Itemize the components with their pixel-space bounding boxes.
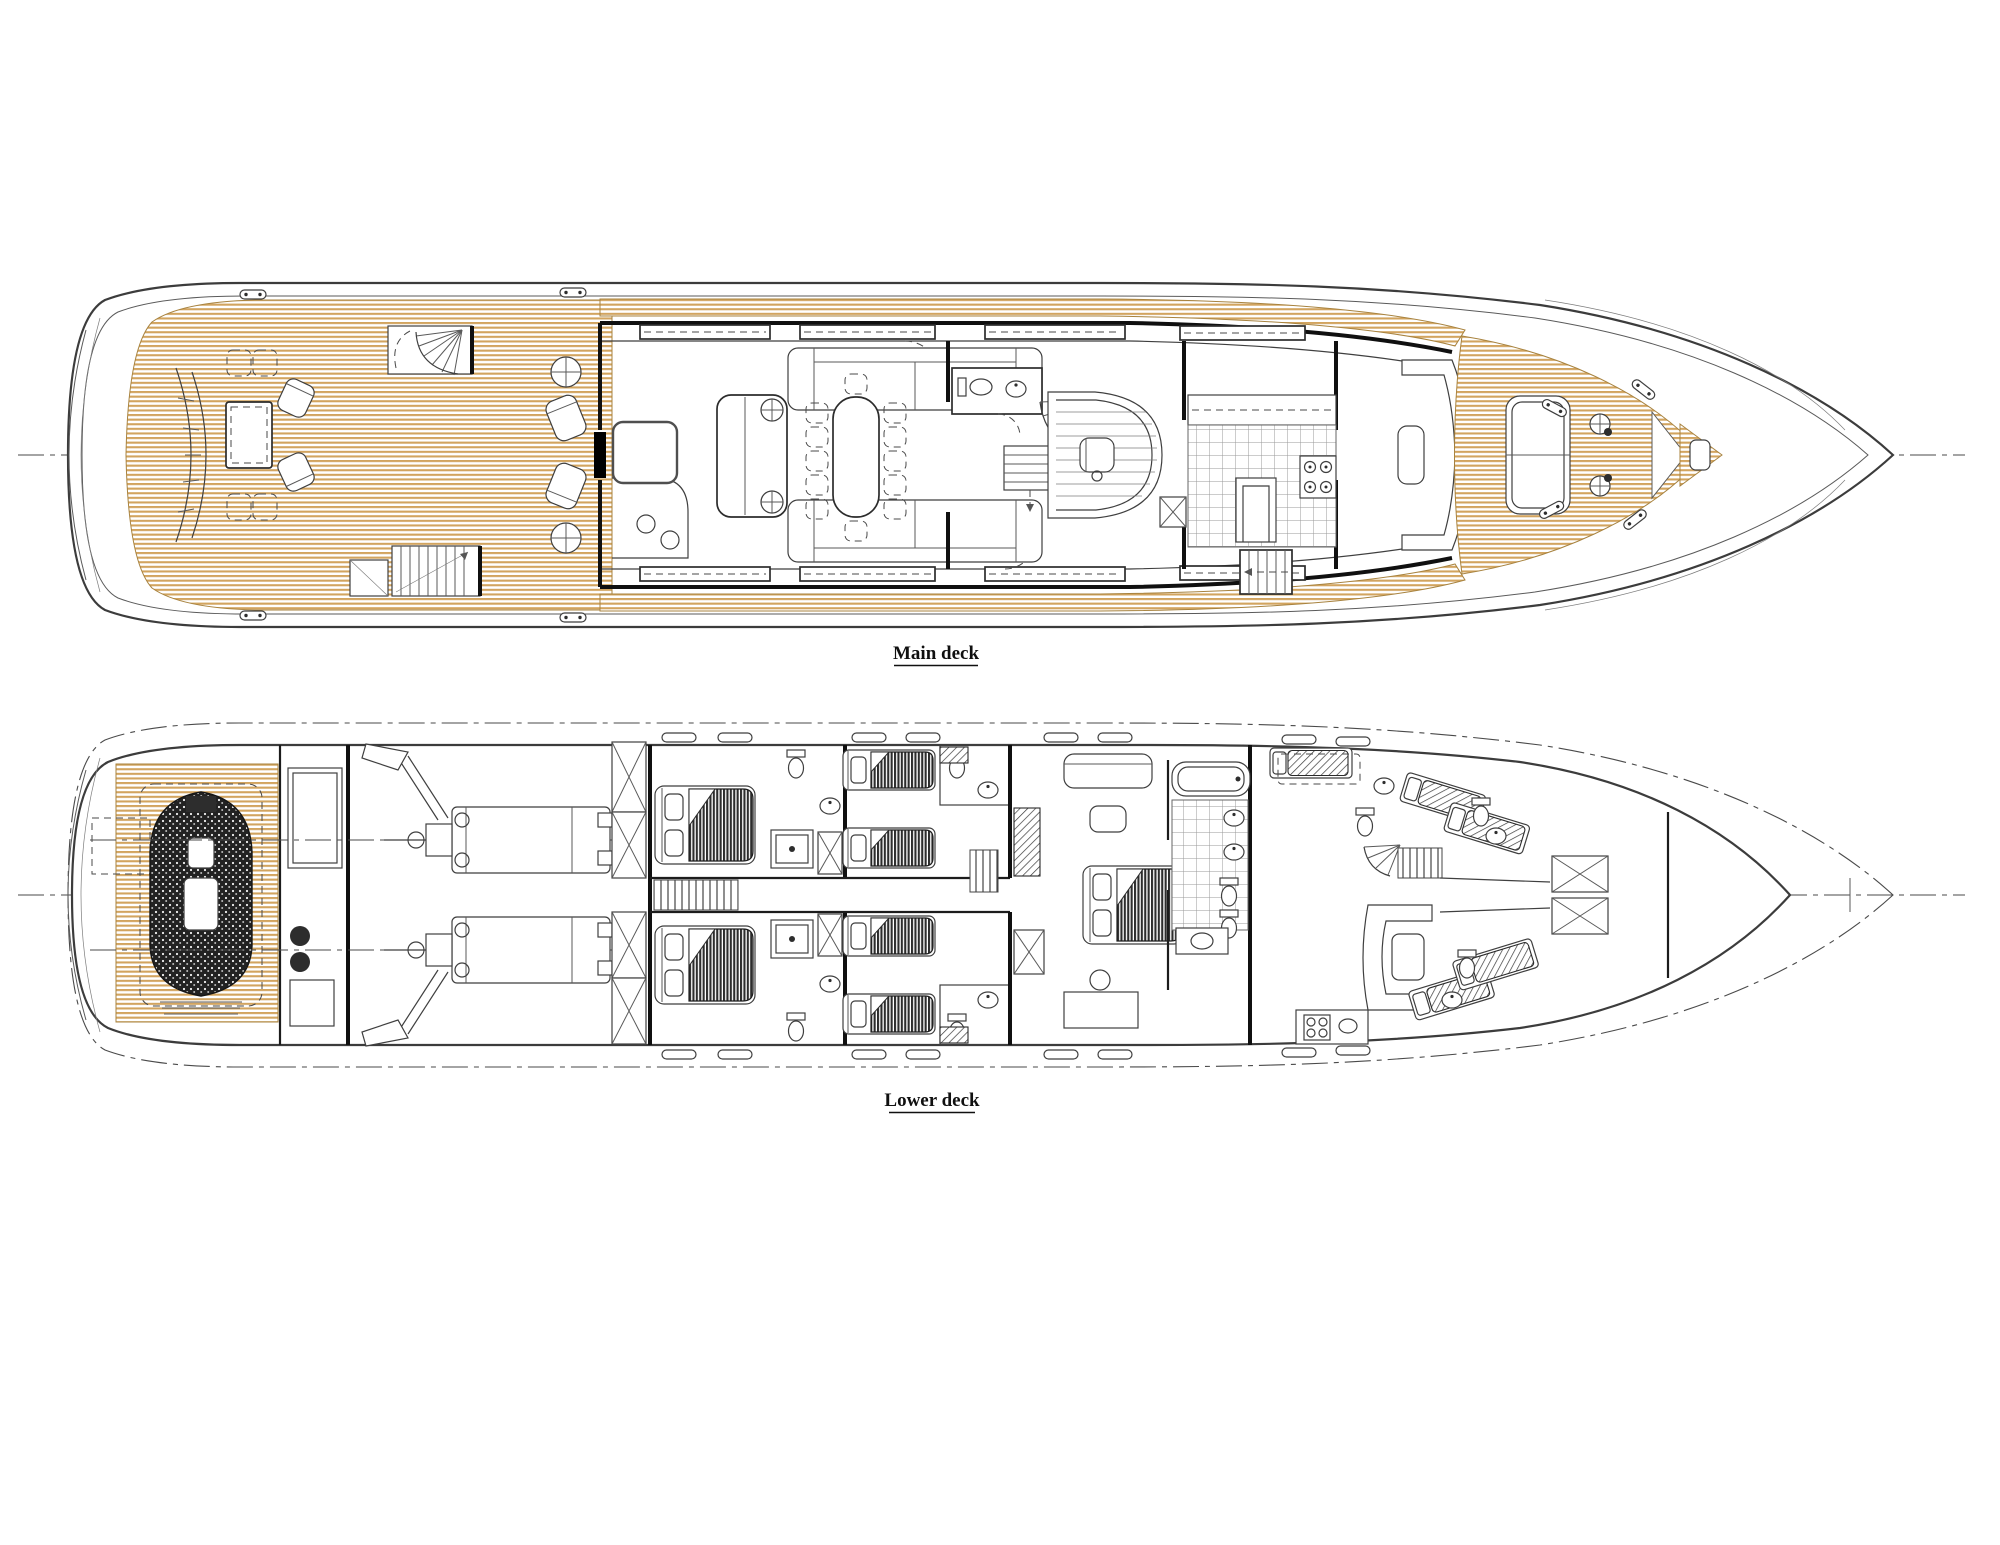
main-deck-label: Main deck bbox=[893, 643, 979, 664]
crew-galley bbox=[1296, 1010, 1368, 1044]
bar-stool bbox=[637, 515, 655, 533]
toilet bbox=[787, 750, 805, 778]
sink bbox=[1442, 992, 1462, 1008]
cleat bbox=[560, 288, 586, 297]
master-sofa bbox=[1064, 754, 1152, 788]
equipment-panel bbox=[288, 768, 342, 868]
toilet bbox=[1356, 808, 1374, 836]
fridge bbox=[1160, 497, 1186, 527]
yacht-deck-plan-sheet: Main deck bbox=[0, 0, 2000, 1545]
toilet bbox=[1220, 878, 1238, 906]
main-deck-plan: Main deck bbox=[18, 283, 1965, 666]
lower-deck-label: Lower deck bbox=[884, 1090, 980, 1111]
single-bed bbox=[843, 750, 935, 790]
toilet bbox=[970, 379, 992, 395]
sink bbox=[978, 992, 998, 1008]
wardrobe bbox=[1014, 808, 1040, 876]
toilet bbox=[1458, 950, 1476, 978]
vanity-desk bbox=[1064, 992, 1138, 1028]
aft-deck bbox=[126, 288, 612, 622]
double-bed bbox=[655, 926, 755, 1004]
sink bbox=[1374, 778, 1394, 794]
pump bbox=[290, 926, 310, 946]
dining-table bbox=[833, 397, 879, 517]
equipment-panel bbox=[290, 980, 334, 1026]
cleat bbox=[560, 613, 586, 622]
vanity-stool bbox=[1090, 970, 1110, 990]
sink bbox=[820, 798, 840, 814]
wardrobe bbox=[940, 747, 968, 763]
sink bbox=[1224, 810, 1244, 826]
coffee-table bbox=[613, 422, 677, 483]
aft-dining-table bbox=[226, 402, 272, 468]
single-bed bbox=[843, 828, 935, 868]
lower-deck-plan: Lower deck bbox=[18, 723, 1965, 1113]
sink bbox=[1486, 828, 1506, 844]
aft-staircase-down bbox=[392, 546, 480, 596]
sink bbox=[820, 976, 840, 992]
toilet bbox=[787, 1013, 805, 1041]
cleat bbox=[240, 611, 266, 620]
wardrobe bbox=[940, 1027, 968, 1043]
salon-aft-door bbox=[594, 432, 606, 478]
sink bbox=[1006, 381, 1026, 397]
single-bed bbox=[843, 994, 935, 1034]
salon-sofa-starboard bbox=[788, 500, 1042, 562]
pilothouse-table bbox=[1398, 426, 1424, 484]
bar-stool bbox=[661, 531, 679, 549]
single-bed bbox=[843, 916, 935, 956]
yacht-deck-plans: Main deck bbox=[0, 0, 2000, 1545]
aft-spiral-staircase bbox=[388, 326, 472, 375]
galley-island bbox=[1236, 478, 1276, 542]
double-bed bbox=[655, 786, 755, 864]
bathtub bbox=[1172, 762, 1250, 796]
sink bbox=[1224, 844, 1244, 860]
lamp-table bbox=[551, 357, 581, 387]
lamp-table bbox=[551, 523, 581, 553]
galley-staircase-down bbox=[1240, 550, 1292, 594]
pump bbox=[290, 952, 310, 972]
stove bbox=[1300, 456, 1336, 498]
master-table bbox=[1090, 806, 1126, 832]
crew-table bbox=[1392, 934, 1424, 980]
salon-sideboard bbox=[717, 395, 787, 517]
cleat bbox=[240, 290, 266, 299]
sink bbox=[978, 782, 998, 798]
toilet bbox=[1472, 798, 1490, 826]
